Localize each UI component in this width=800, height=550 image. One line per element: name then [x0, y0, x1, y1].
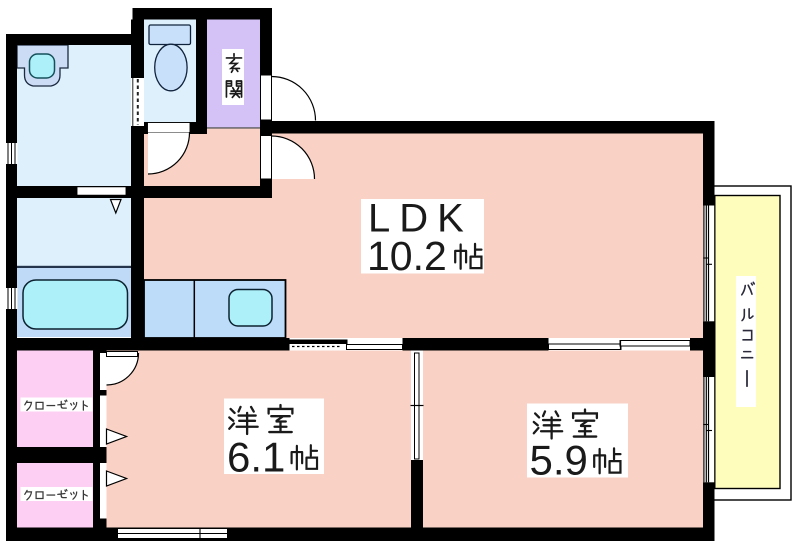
- svg-text:6.1: 6.1: [227, 434, 285, 481]
- svg-text:10.2: 10.2: [367, 233, 447, 279]
- svg-text:5.9: 5.9: [530, 437, 588, 484]
